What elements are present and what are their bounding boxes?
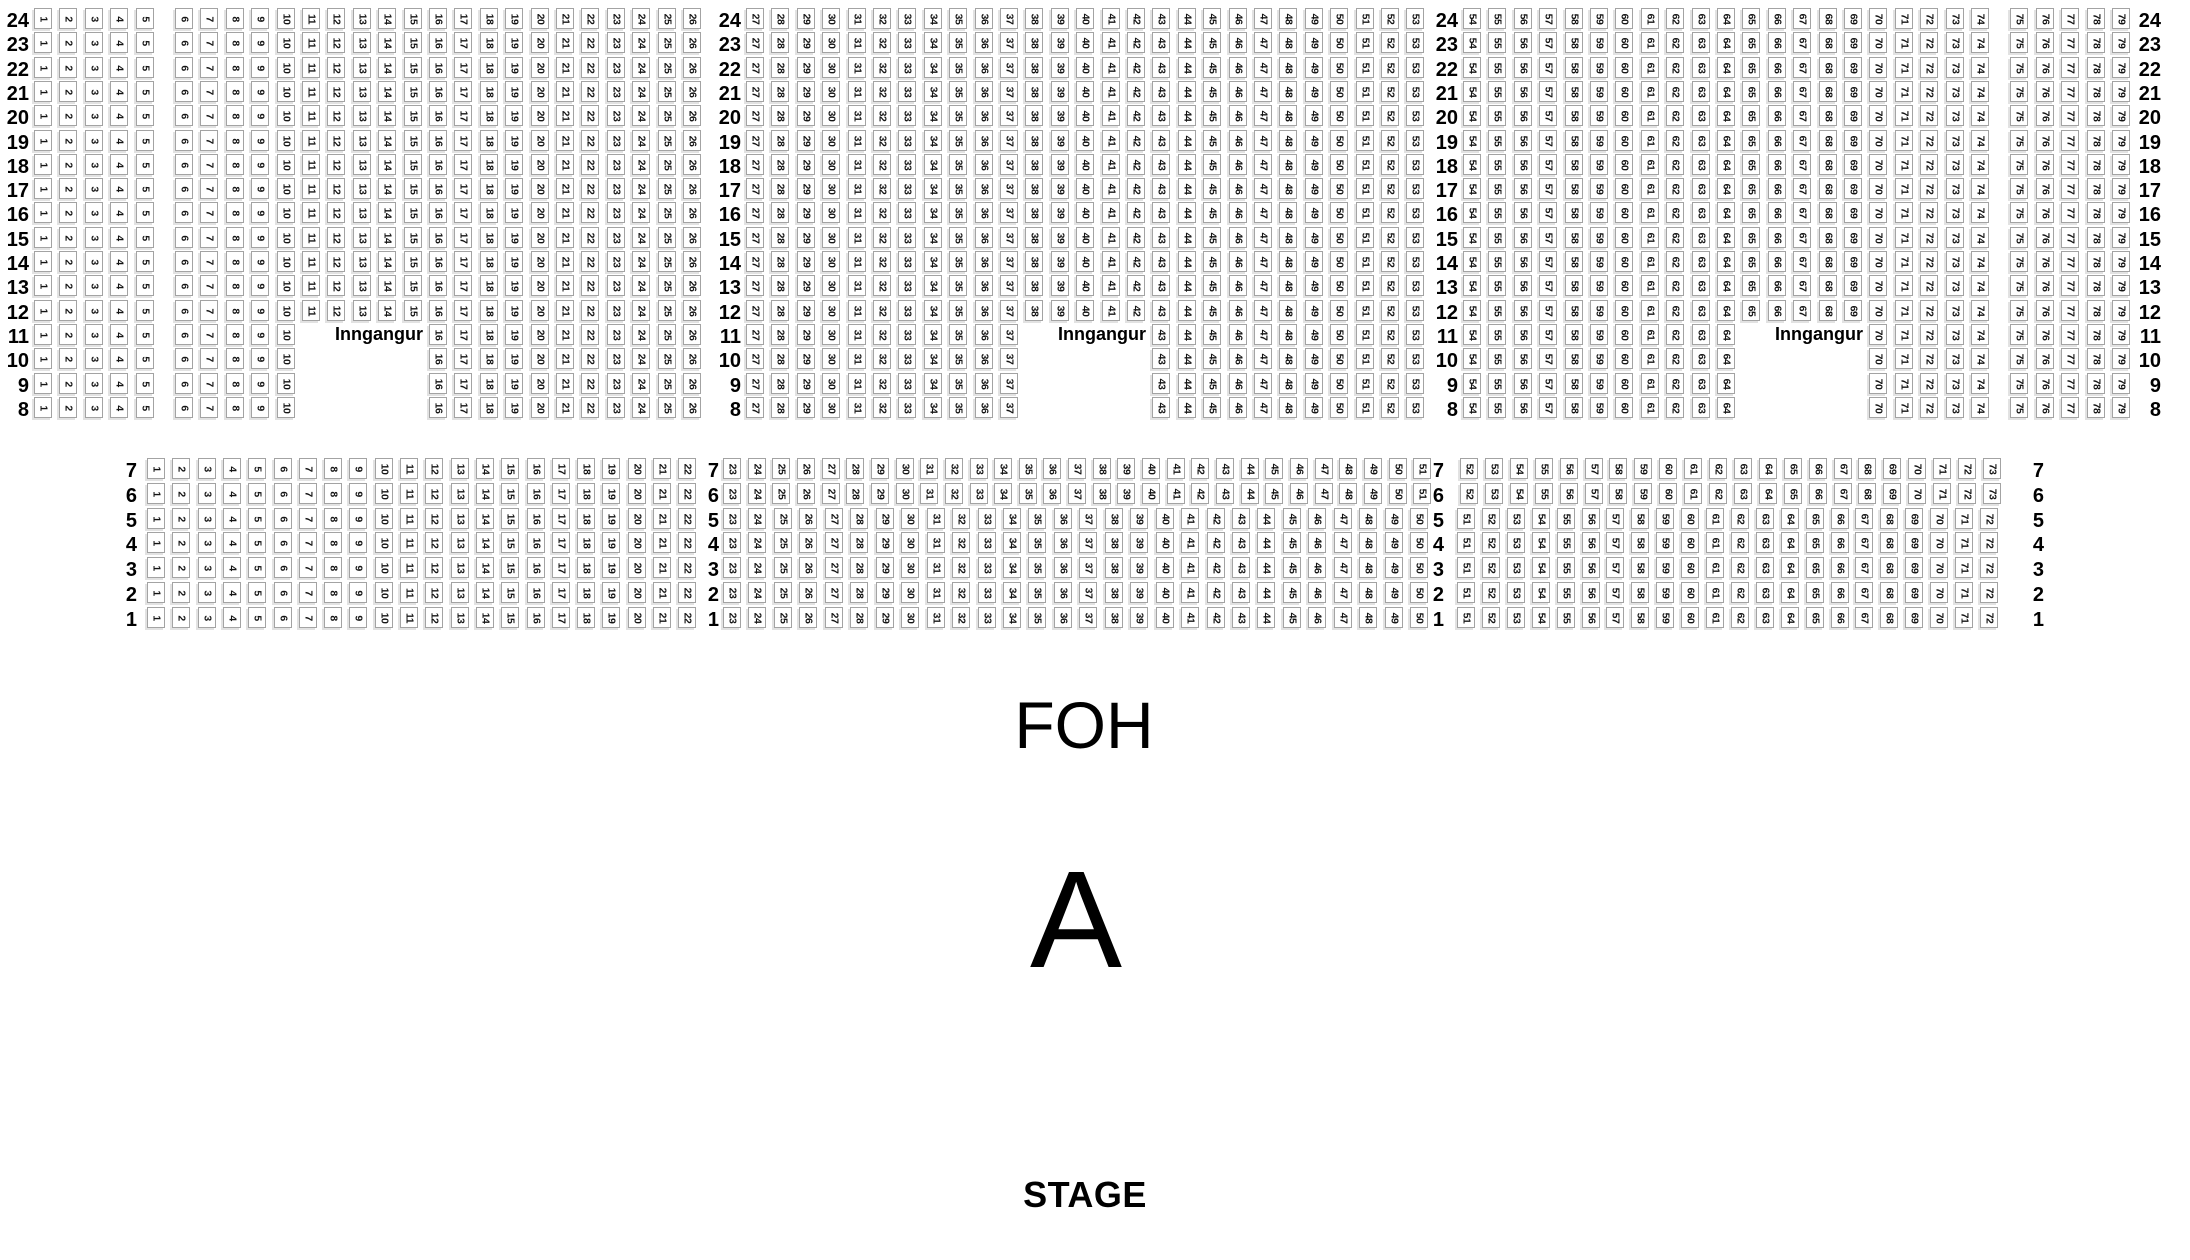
seat[interactable]: 29: [871, 458, 889, 479]
seat[interactable]: 37: [1079, 582, 1097, 603]
seat[interactable]: 56: [1582, 607, 1600, 628]
seat[interactable]: 17: [552, 532, 570, 553]
seat[interactable]: 11: [400, 458, 418, 479]
seat[interactable]: 43: [1232, 557, 1250, 578]
seat[interactable]: 1: [147, 483, 165, 504]
seat[interactable]: 47: [1315, 458, 1333, 479]
seat[interactable]: 19: [602, 458, 620, 479]
seat[interactable]: 47: [1334, 557, 1352, 578]
seat[interactable]: 34: [994, 483, 1012, 504]
seat[interactable]: 15: [501, 557, 519, 578]
seat[interactable]: 66: [1831, 607, 1849, 628]
seat[interactable]: 19: [602, 557, 620, 578]
seat[interactable]: 68: [1880, 532, 1898, 553]
seat[interactable]: 25: [774, 532, 792, 553]
seat[interactable]: 72: [1980, 508, 1998, 529]
seat[interactable]: 17: [552, 582, 570, 603]
seat[interactable]: 65: [1806, 532, 1824, 553]
seat[interactable]: 71: [1955, 607, 1973, 628]
seat[interactable]: 41: [1181, 508, 1199, 529]
seat[interactable]: 25: [774, 607, 792, 628]
seat[interactable]: 21: [653, 508, 671, 529]
seat[interactable]: 49: [1364, 458, 1382, 479]
seat[interactable]: 60: [1659, 458, 1677, 479]
seat[interactable]: 64: [1781, 607, 1799, 628]
seat[interactable]: 69: [1905, 532, 1923, 553]
seat[interactable]: 20: [628, 532, 646, 553]
seat[interactable]: 8: [324, 483, 342, 504]
seat[interactable]: 26: [799, 607, 817, 628]
seat[interactable]: 38: [1105, 607, 1123, 628]
seat[interactable]: 56: [1582, 508, 1600, 529]
seat[interactable]: 58: [1631, 557, 1649, 578]
seat[interactable]: 12: [425, 557, 443, 578]
seat[interactable]: 73: [1983, 458, 2001, 479]
seat[interactable]: 38: [1105, 508, 1123, 529]
seat[interactable]: 66: [1831, 532, 1849, 553]
seat[interactable]: 67: [1834, 483, 1852, 504]
seat[interactable]: 45: [1265, 483, 1283, 504]
seat[interactable]: 48: [1359, 532, 1377, 553]
seat[interactable]: 9: [349, 557, 367, 578]
seat[interactable]: 42: [1191, 483, 1209, 504]
seat[interactable]: 1: [147, 557, 165, 578]
seat[interactable]: 37: [1079, 557, 1097, 578]
seat[interactable]: 3: [198, 557, 216, 578]
seat[interactable]: 66: [1831, 557, 1849, 578]
seat[interactable]: 23: [723, 508, 741, 529]
seat[interactable]: 42: [1207, 607, 1225, 628]
seat[interactable]: 40: [1156, 532, 1174, 553]
seat[interactable]: 46: [1290, 458, 1308, 479]
seat[interactable]: 60: [1659, 483, 1677, 504]
seat[interactable]: 5: [248, 483, 266, 504]
seat[interactable]: 33: [978, 582, 996, 603]
seat[interactable]: 43: [1232, 582, 1250, 603]
seat[interactable]: 48: [1359, 508, 1377, 529]
seat[interactable]: 46: [1308, 582, 1326, 603]
seat[interactable]: 55: [1557, 557, 1575, 578]
seat[interactable]: 2: [172, 483, 190, 504]
seat[interactable]: 55: [1535, 458, 1553, 479]
seat[interactable]: 55: [1557, 582, 1575, 603]
seat[interactable]: 17: [552, 607, 570, 628]
seat[interactable]: 41: [1167, 458, 1185, 479]
seat[interactable]: 11: [400, 508, 418, 529]
seat[interactable]: 46: [1308, 607, 1326, 628]
seat[interactable]: 39: [1130, 532, 1148, 553]
seat[interactable]: 3: [198, 508, 216, 529]
seat[interactable]: 14: [476, 532, 494, 553]
seat[interactable]: 46: [1308, 508, 1326, 529]
seat[interactable]: 36: [1054, 607, 1072, 628]
seat[interactable]: 42: [1207, 508, 1225, 529]
seat[interactable]: 9: [349, 532, 367, 553]
seat[interactable]: 13: [451, 557, 469, 578]
seat[interactable]: 18: [577, 483, 595, 504]
seat[interactable]: 24: [748, 607, 766, 628]
seat[interactable]: 20: [628, 607, 646, 628]
seat[interactable]: 11: [400, 557, 418, 578]
seat[interactable]: 41: [1181, 607, 1199, 628]
seat[interactable]: 66: [1831, 582, 1849, 603]
seat[interactable]: 41: [1167, 483, 1185, 504]
seat[interactable]: 6: [274, 557, 292, 578]
seat[interactable]: 50: [1410, 532, 1428, 553]
seat[interactable]: 6: [274, 582, 292, 603]
seat[interactable]: 28: [850, 607, 868, 628]
seat[interactable]: 39: [1117, 458, 1135, 479]
seat[interactable]: 55: [1557, 607, 1575, 628]
seat[interactable]: 24: [748, 458, 766, 479]
seat[interactable]: 32: [952, 582, 970, 603]
seat[interactable]: 71: [1955, 557, 1973, 578]
seat[interactable]: 40: [1142, 458, 1160, 479]
seat[interactable]: 53: [1507, 607, 1525, 628]
seat[interactable]: 12: [425, 607, 443, 628]
seat[interactable]: 70: [1908, 483, 1926, 504]
seat[interactable]: 36: [1043, 483, 1061, 504]
seat[interactable]: 58: [1631, 582, 1649, 603]
seat[interactable]: 26: [799, 508, 817, 529]
seat[interactable]: 43: [1216, 483, 1234, 504]
seat[interactable]: 15: [501, 532, 519, 553]
seat[interactable]: 59: [1656, 557, 1674, 578]
seat[interactable]: 21: [653, 483, 671, 504]
seat[interactable]: 26: [799, 532, 817, 553]
seat[interactable]: 40: [1156, 557, 1174, 578]
seat[interactable]: 44: [1241, 483, 1259, 504]
seat[interactable]: 65: [1806, 582, 1824, 603]
seat[interactable]: 12: [425, 532, 443, 553]
seat[interactable]: 23: [723, 483, 741, 504]
seat[interactable]: 22: [678, 508, 696, 529]
seat[interactable]: 62: [1731, 557, 1749, 578]
seat[interactable]: 11: [400, 607, 418, 628]
seat[interactable]: 61: [1706, 508, 1724, 529]
seat[interactable]: 60: [1681, 532, 1699, 553]
seat[interactable]: 59: [1656, 508, 1674, 529]
seat[interactable]: 35: [1028, 557, 1046, 578]
seat[interactable]: 3: [198, 483, 216, 504]
seat[interactable]: 2: [172, 508, 190, 529]
seat[interactable]: 3: [198, 582, 216, 603]
seat[interactable]: 27: [822, 483, 840, 504]
seat[interactable]: 5: [248, 532, 266, 553]
seat[interactable]: 40: [1156, 607, 1174, 628]
seat[interactable]: 45: [1283, 532, 1301, 553]
seat[interactable]: 36: [1054, 508, 1072, 529]
seat[interactable]: 40: [1156, 582, 1174, 603]
seat[interactable]: 50: [1410, 607, 1428, 628]
seat[interactable]: 58: [1631, 532, 1649, 553]
seat[interactable]: 58: [1631, 508, 1649, 529]
seat[interactable]: 63: [1756, 582, 1774, 603]
seat[interactable]: 19: [602, 607, 620, 628]
seat[interactable]: 12: [425, 508, 443, 529]
seat[interactable]: 17: [552, 508, 570, 529]
seat[interactable]: 67: [1855, 557, 1873, 578]
seat[interactable]: 35: [1019, 458, 1037, 479]
seat[interactable]: 62: [1709, 458, 1727, 479]
seat[interactable]: 7: [299, 557, 317, 578]
seat[interactable]: 17: [552, 483, 570, 504]
seat[interactable]: 8: [324, 607, 342, 628]
seat[interactable]: 3: [198, 458, 216, 479]
seat[interactable]: 16: [527, 582, 545, 603]
seat[interactable]: 44: [1257, 582, 1275, 603]
seat[interactable]: 49: [1385, 557, 1403, 578]
seat[interactable]: 1: [147, 458, 165, 479]
seat[interactable]: 6: [274, 532, 292, 553]
seat[interactable]: 49: [1385, 508, 1403, 529]
seat[interactable]: 20: [628, 557, 646, 578]
seat[interactable]: 16: [527, 458, 545, 479]
seat[interactable]: 1: [147, 582, 165, 603]
seat[interactable]: 69: [1905, 557, 1923, 578]
seat[interactable]: 49: [1385, 532, 1403, 553]
seat[interactable]: 56: [1582, 532, 1600, 553]
seat[interactable]: 72: [1980, 607, 1998, 628]
seat[interactable]: 11: [400, 532, 418, 553]
seat[interactable]: 62: [1731, 508, 1749, 529]
seat[interactable]: 26: [797, 458, 815, 479]
seat[interactable]: 28: [850, 582, 868, 603]
seat[interactable]: 63: [1734, 458, 1752, 479]
seat[interactable]: 42: [1191, 458, 1209, 479]
seat[interactable]: 4: [223, 582, 241, 603]
seat[interactable]: 62: [1731, 582, 1749, 603]
seat[interactable]: 9: [349, 483, 367, 504]
seat[interactable]: 30: [901, 607, 919, 628]
seat[interactable]: 9: [349, 508, 367, 529]
seat[interactable]: 70: [1930, 557, 1948, 578]
seat[interactable]: 2: [172, 607, 190, 628]
seat[interactable]: 35: [1028, 582, 1046, 603]
seat[interactable]: 67: [1855, 582, 1873, 603]
seat[interactable]: 26: [797, 483, 815, 504]
seat[interactable]: 6: [274, 458, 292, 479]
seat[interactable]: 50: [1410, 508, 1428, 529]
seat[interactable]: 50: [1389, 458, 1407, 479]
seat[interactable]: 34: [994, 458, 1012, 479]
seat[interactable]: 39: [1117, 483, 1135, 504]
seat[interactable]: 13: [451, 483, 469, 504]
seat[interactable]: 41: [1181, 532, 1199, 553]
seat[interactable]: 40: [1142, 483, 1160, 504]
seat[interactable]: 67: [1855, 508, 1873, 529]
seat[interactable]: 48: [1359, 557, 1377, 578]
seat[interactable]: 24: [748, 483, 766, 504]
seat[interactable]: 64: [1781, 532, 1799, 553]
seat[interactable]: 29: [876, 582, 894, 603]
seat[interactable]: 48: [1359, 582, 1377, 603]
seat[interactable]: 5: [248, 582, 266, 603]
seat[interactable]: 43: [1232, 532, 1250, 553]
seat[interactable]: 51: [1413, 483, 1431, 504]
seat[interactable]: 16: [527, 483, 545, 504]
seat[interactable]: 39: [1130, 582, 1148, 603]
seat[interactable]: 51: [1457, 532, 1475, 553]
seat[interactable]: 4: [223, 557, 241, 578]
seat[interactable]: 32: [952, 508, 970, 529]
seat[interactable]: 23: [723, 557, 741, 578]
seat[interactable]: 27: [825, 508, 843, 529]
seat[interactable]: 30: [901, 508, 919, 529]
seat[interactable]: 22: [678, 582, 696, 603]
seat[interactable]: 72: [1958, 483, 1976, 504]
seat[interactable]: 69: [1905, 508, 1923, 529]
seat[interactable]: 18: [577, 458, 595, 479]
seat[interactable]: 62: [1731, 532, 1749, 553]
seat[interactable]: 69: [1905, 607, 1923, 628]
seat[interactable]: 35: [1028, 508, 1046, 529]
seat[interactable]: 72: [1980, 532, 1998, 553]
seat[interactable]: 33: [970, 458, 988, 479]
seat[interactable]: 67: [1855, 607, 1873, 628]
seat[interactable]: 60: [1681, 557, 1699, 578]
seat[interactable]: 63: [1756, 607, 1774, 628]
seat[interactable]: 72: [1980, 557, 1998, 578]
seat[interactable]: 39: [1130, 508, 1148, 529]
seat[interactable]: 52: [1482, 557, 1500, 578]
seat[interactable]: 51: [1457, 607, 1475, 628]
seat[interactable]: 21: [653, 582, 671, 603]
seat[interactable]: 68: [1880, 607, 1898, 628]
seat[interactable]: 8: [324, 458, 342, 479]
seat[interactable]: 53: [1485, 458, 1503, 479]
seat[interactable]: 38: [1105, 582, 1123, 603]
seat[interactable]: 27: [825, 607, 843, 628]
seat[interactable]: 29: [876, 607, 894, 628]
seat[interactable]: 63: [1756, 508, 1774, 529]
seat[interactable]: 13: [451, 508, 469, 529]
seat[interactable]: 29: [871, 483, 889, 504]
seat[interactable]: 46: [1308, 532, 1326, 553]
seat[interactable]: 37: [1079, 508, 1097, 529]
seat[interactable]: 57: [1606, 557, 1624, 578]
seat[interactable]: 22: [678, 557, 696, 578]
seat[interactable]: 8: [324, 508, 342, 529]
seat[interactable]: 5: [248, 557, 266, 578]
seat[interactable]: 43: [1232, 607, 1250, 628]
seat[interactable]: 43: [1216, 458, 1234, 479]
seat[interactable]: 22: [678, 532, 696, 553]
seat[interactable]: 62: [1709, 483, 1727, 504]
seat[interactable]: 52: [1460, 483, 1478, 504]
seat[interactable]: 32: [952, 532, 970, 553]
seat[interactable]: 19: [602, 532, 620, 553]
seat[interactable]: 54: [1532, 508, 1550, 529]
seat[interactable]: 40: [1156, 508, 1174, 529]
seat[interactable]: 44: [1257, 508, 1275, 529]
seat[interactable]: 59: [1656, 532, 1674, 553]
seat[interactable]: 32: [952, 607, 970, 628]
seat[interactable]: 30: [901, 557, 919, 578]
seat[interactable]: 24: [748, 532, 766, 553]
seat[interactable]: 12: [425, 458, 443, 479]
seat[interactable]: 69: [1905, 582, 1923, 603]
seat[interactable]: 65: [1806, 607, 1824, 628]
seat[interactable]: 38: [1105, 532, 1123, 553]
seat[interactable]: 72: [1958, 458, 1976, 479]
seat[interactable]: 46: [1308, 557, 1326, 578]
seat[interactable]: 54: [1510, 458, 1528, 479]
seat[interactable]: 23: [723, 607, 741, 628]
seat[interactable]: 33: [978, 557, 996, 578]
seat[interactable]: 5: [248, 508, 266, 529]
seat[interactable]: 39: [1130, 607, 1148, 628]
seat[interactable]: 37: [1068, 458, 1086, 479]
seat[interactable]: 65: [1806, 557, 1824, 578]
seat[interactable]: 25: [774, 557, 792, 578]
seat[interactable]: 16: [527, 508, 545, 529]
seat[interactable]: 70: [1908, 458, 1926, 479]
seat[interactable]: 56: [1560, 483, 1578, 504]
seat[interactable]: 10: [375, 607, 393, 628]
seat[interactable]: 68: [1880, 557, 1898, 578]
seat[interactable]: 24: [748, 557, 766, 578]
seat[interactable]: 28: [850, 532, 868, 553]
seat[interactable]: 30: [901, 532, 919, 553]
seat[interactable]: 58: [1609, 483, 1627, 504]
seat[interactable]: 62: [1731, 607, 1749, 628]
seat[interactable]: 50: [1410, 582, 1428, 603]
seat[interactable]: 73: [1983, 483, 2001, 504]
seat[interactable]: 49: [1364, 483, 1382, 504]
seat[interactable]: 20: [628, 582, 646, 603]
seat[interactable]: 15: [501, 483, 519, 504]
seat[interactable]: 2: [172, 532, 190, 553]
seat[interactable]: 9: [349, 607, 367, 628]
seat[interactable]: 61: [1684, 458, 1702, 479]
seat[interactable]: 19: [602, 582, 620, 603]
seat[interactable]: 29: [876, 557, 894, 578]
seat[interactable]: 69: [1883, 458, 1901, 479]
seat[interactable]: 70: [1930, 508, 1948, 529]
seat[interactable]: 22: [678, 458, 696, 479]
seat[interactable]: 7: [299, 607, 317, 628]
seat[interactable]: 2: [172, 458, 190, 479]
seat[interactable]: 57: [1606, 582, 1624, 603]
seat[interactable]: 47: [1334, 532, 1352, 553]
seat[interactable]: 69: [1883, 483, 1901, 504]
seat[interactable]: 71: [1955, 508, 1973, 529]
seat[interactable]: 31: [920, 483, 938, 504]
seat[interactable]: 53: [1507, 508, 1525, 529]
seat[interactable]: 4: [223, 607, 241, 628]
seat[interactable]: 52: [1482, 607, 1500, 628]
seat[interactable]: 2: [172, 582, 190, 603]
seat[interactable]: 52: [1482, 582, 1500, 603]
seat[interactable]: 71: [1933, 458, 1951, 479]
seat[interactable]: 63: [1734, 483, 1752, 504]
seat[interactable]: 37: [1079, 607, 1097, 628]
seat[interactable]: 54: [1532, 582, 1550, 603]
seat[interactable]: 23: [723, 532, 741, 553]
seat[interactable]: 71: [1955, 532, 1973, 553]
seat[interactable]: 20: [628, 458, 646, 479]
seat[interactable]: 38: [1105, 557, 1123, 578]
seat[interactable]: 61: [1706, 557, 1724, 578]
seat[interactable]: 42: [1207, 557, 1225, 578]
seat[interactable]: 66: [1831, 508, 1849, 529]
seat[interactable]: 54: [1532, 607, 1550, 628]
seat[interactable]: 60: [1681, 582, 1699, 603]
seat[interactable]: 27: [825, 557, 843, 578]
seat[interactable]: 45: [1283, 508, 1301, 529]
seat[interactable]: 53: [1507, 532, 1525, 553]
